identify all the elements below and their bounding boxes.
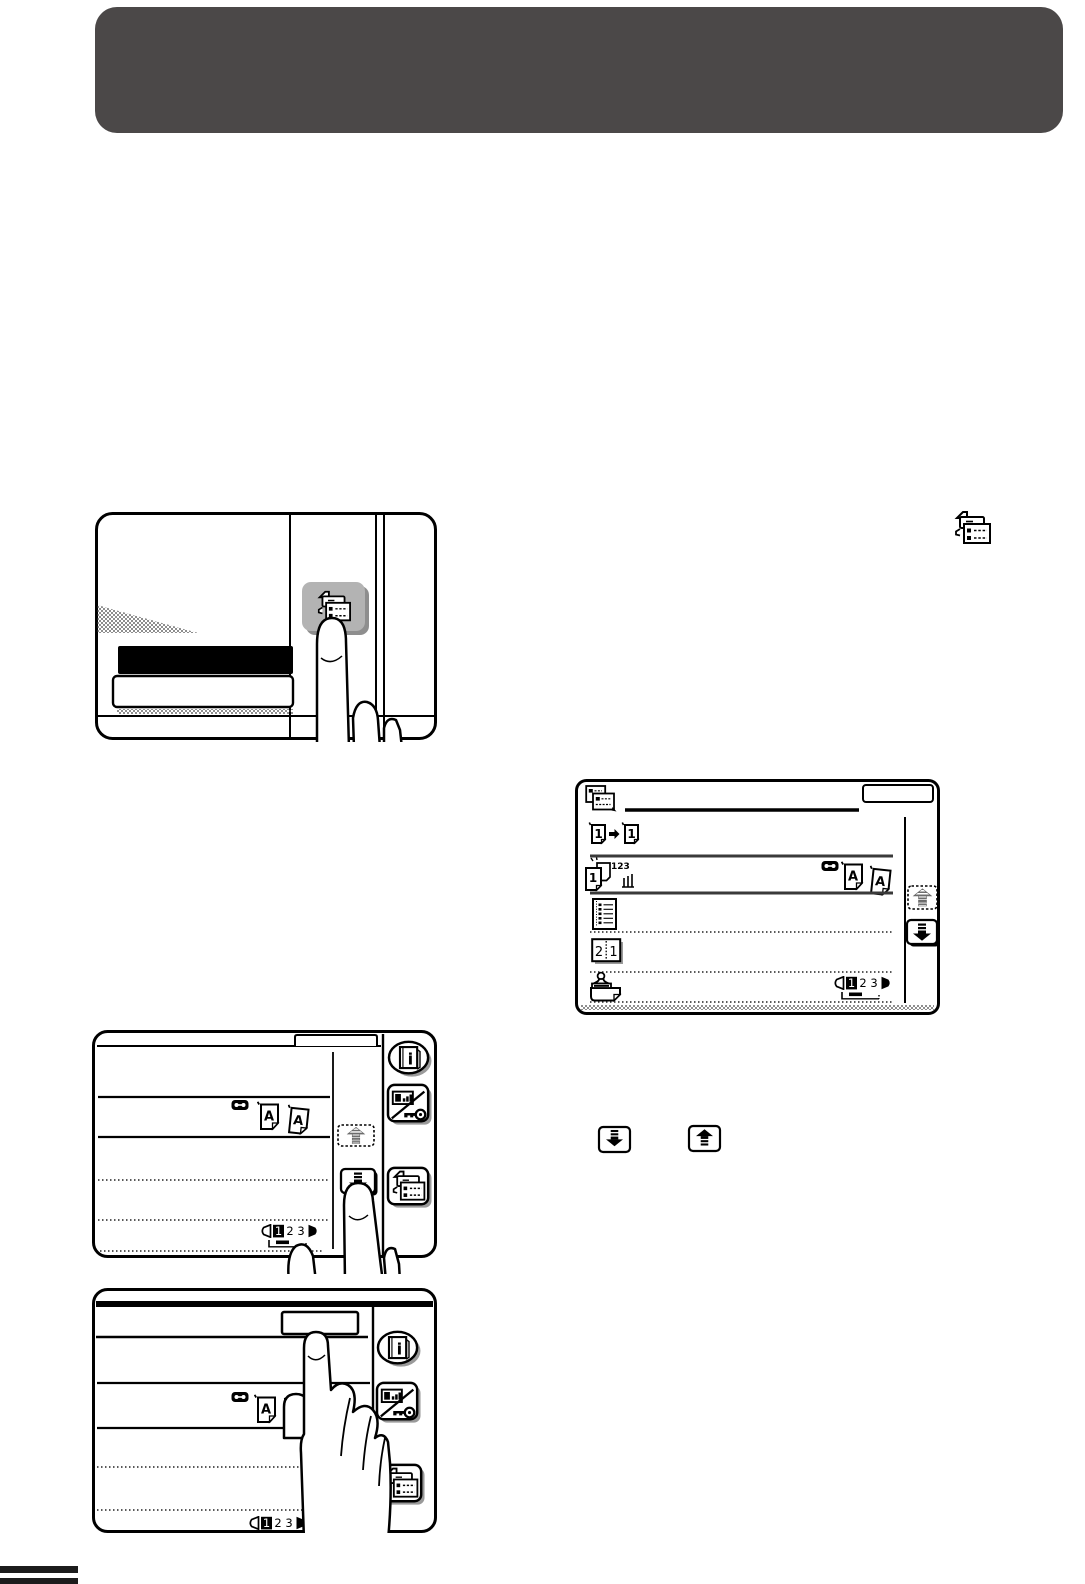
scroll-up-key	[908, 886, 937, 909]
touch-screen-menu: 1 1 123 1	[575, 779, 940, 1016]
figure-press-job-status-key	[95, 512, 437, 742]
figure-press-ok-key	[92, 1288, 437, 1533]
footer-page-marker	[0, 1578, 78, 1584]
svg-text:1: 1	[589, 871, 597, 885]
panel-tray-shadow	[117, 709, 293, 714]
panel-tray	[113, 676, 293, 707]
svg-text:1: 1	[627, 827, 635, 841]
inline-job-status-key-icon	[950, 506, 994, 550]
figure-border	[94, 1032, 436, 1257]
inline-scroll-up-key-icon	[687, 1124, 723, 1154]
chapter-header-bar	[95, 7, 1063, 133]
screen-bezel-bar	[96, 1301, 433, 1307]
ok-key	[282, 1312, 358, 1334]
two-in-one-icon: 2 1	[592, 939, 623, 964]
inline-scroll-down-key-icon	[597, 1125, 633, 1155]
document-list-icon	[593, 899, 616, 929]
scroll-down-key	[907, 920, 940, 947]
scroll-up-key	[338, 1125, 374, 1146]
footer-page-marker	[0, 1566, 78, 1573]
svg-text:1: 1	[609, 945, 617, 960]
svg-text:123: 123	[611, 862, 630, 872]
figure-press-scroll-down-key	[92, 1030, 437, 1274]
svg-text:2: 2	[595, 945, 603, 960]
svg-text:1: 1	[594, 827, 602, 841]
manual-page: A A i	[0, 0, 1085, 1584]
screen-bottom-shading	[581, 1005, 934, 1010]
ok-key	[295, 1035, 377, 1046]
ok-key	[863, 785, 933, 802]
panel-display-slot	[118, 646, 293, 674]
